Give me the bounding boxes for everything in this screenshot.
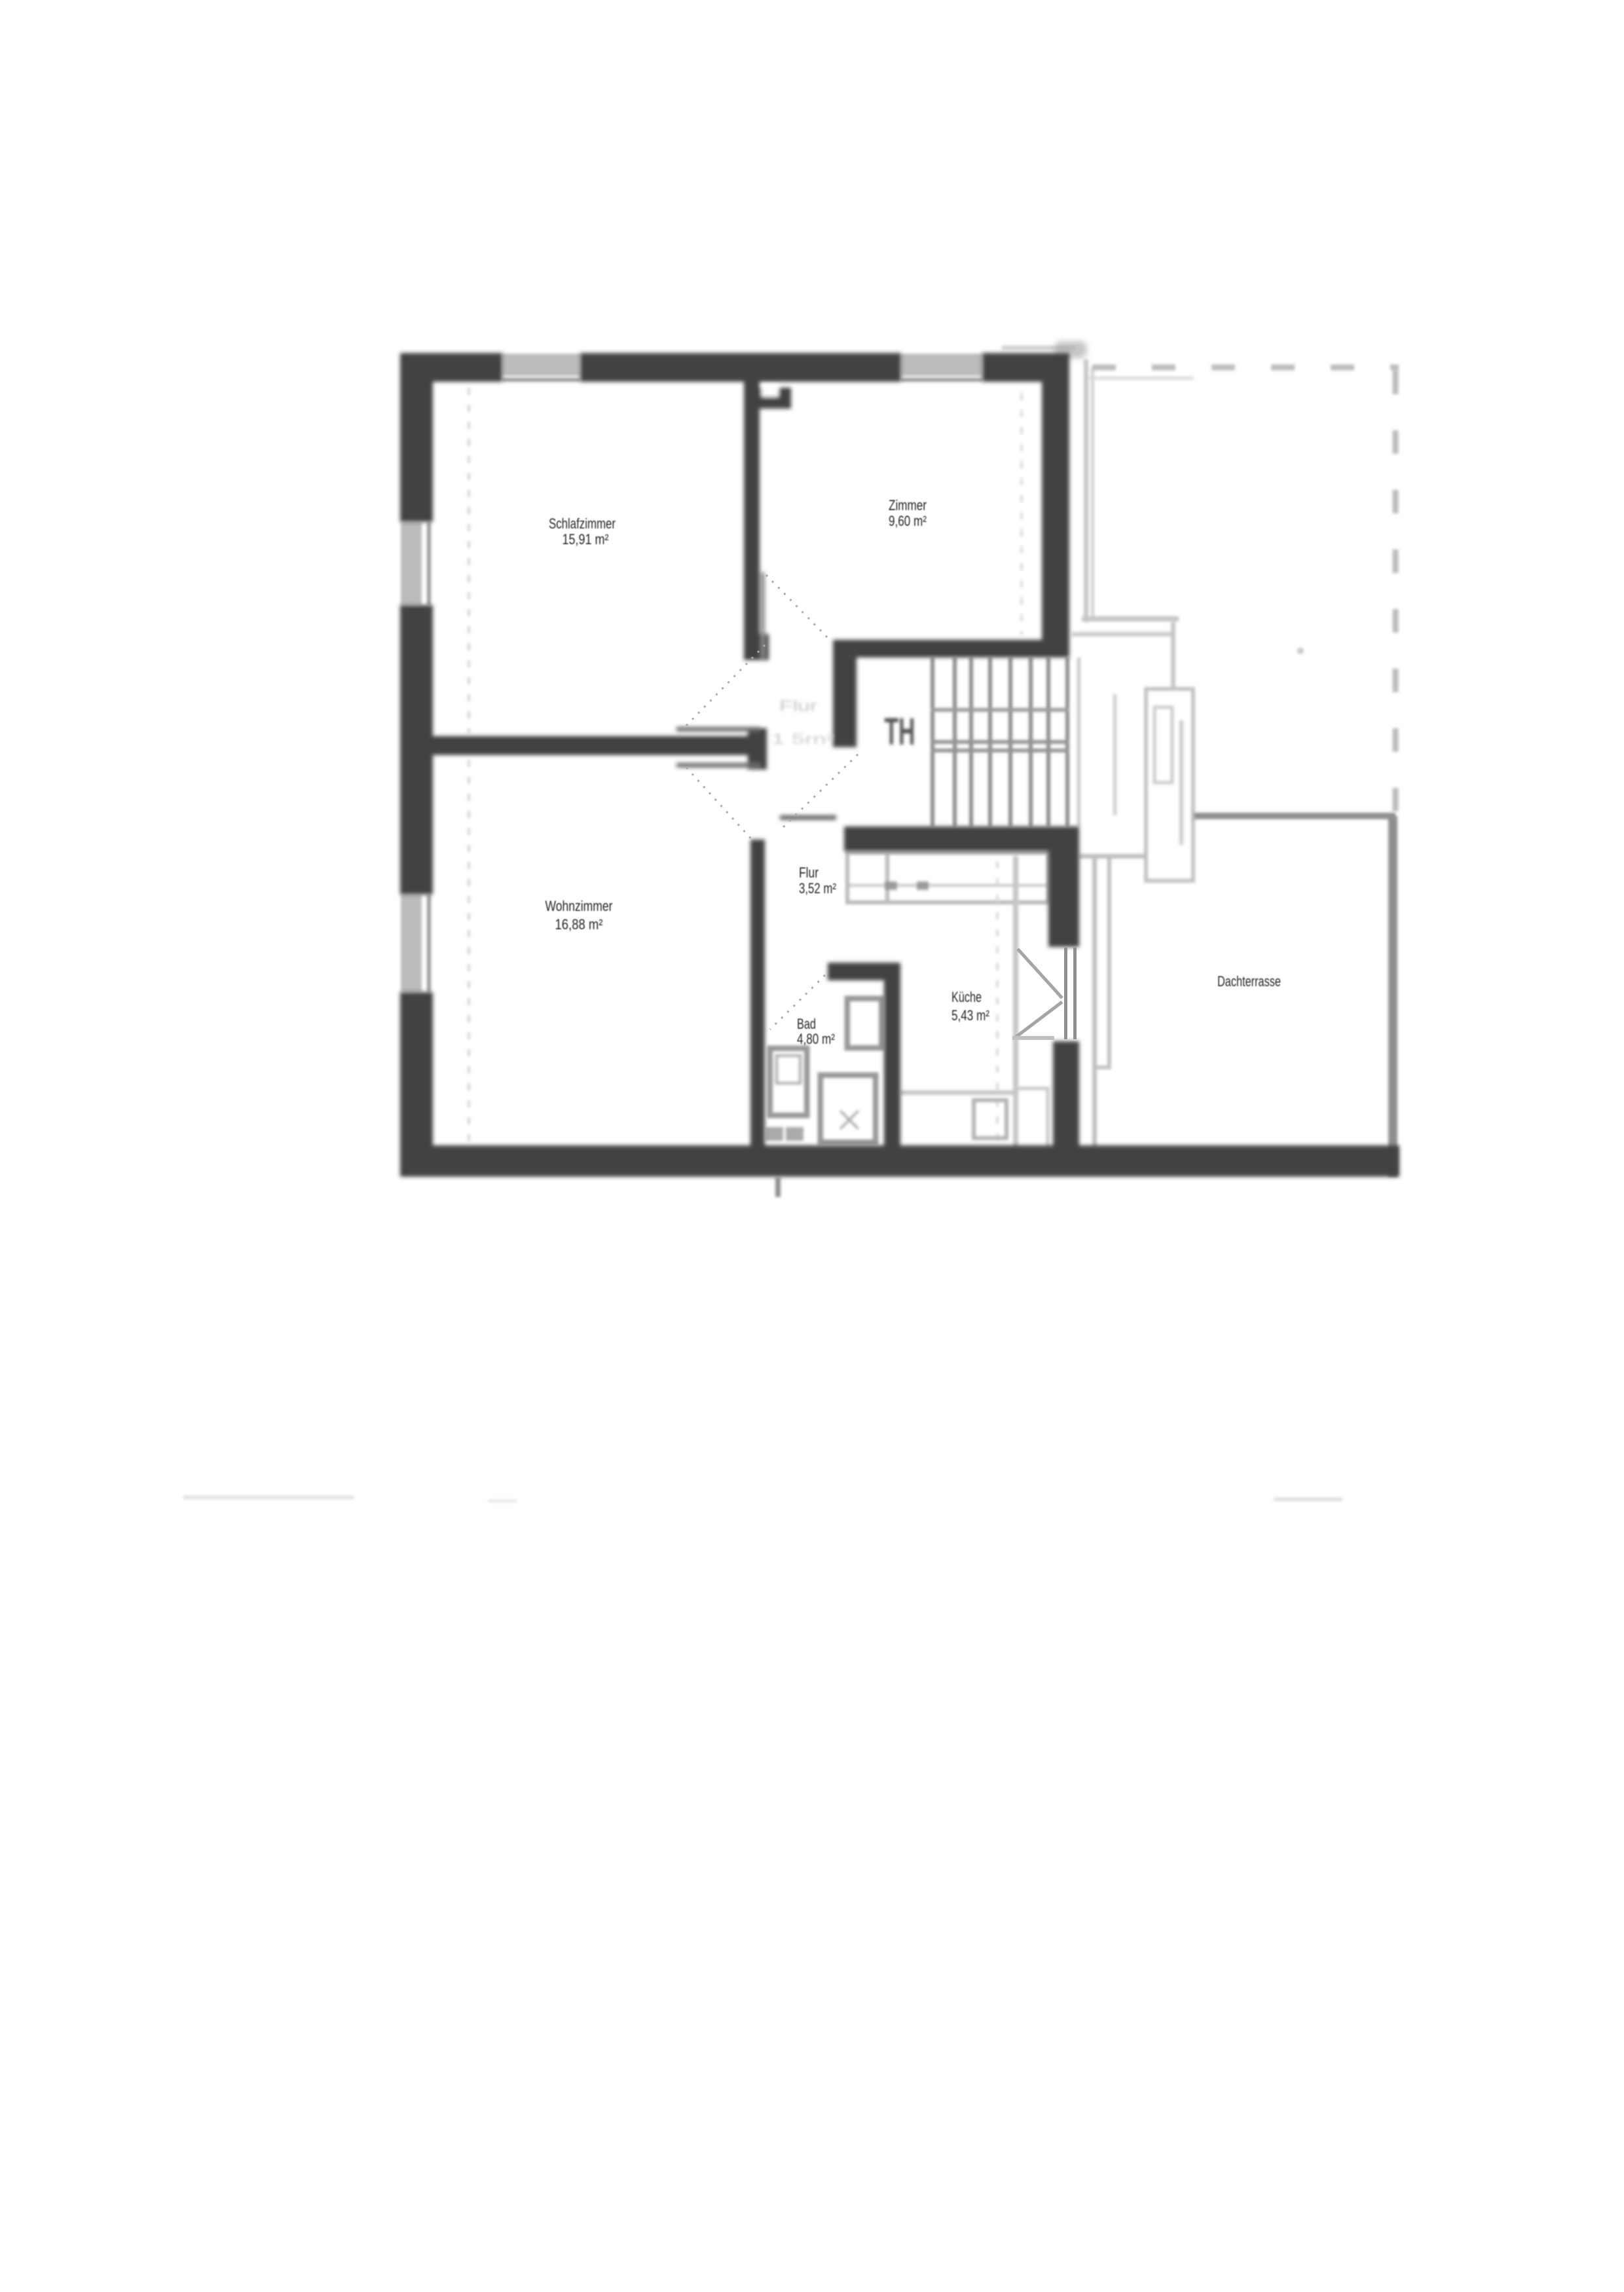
svg-text:Schlafzimmer: Schlafzimmer bbox=[549, 515, 616, 532]
svg-text:Bad: Bad bbox=[797, 1016, 816, 1032]
svg-text:9,60 m²: 9,60 m² bbox=[889, 513, 927, 529]
svg-text:Küche: Küche bbox=[951, 989, 982, 1005]
svg-text:Flur: Flur bbox=[779, 697, 817, 715]
svg-text:15,91 m²: 15,91 m² bbox=[563, 531, 609, 547]
svg-text:5,43 m²: 5,43 m² bbox=[951, 1007, 989, 1024]
svg-text:Wohnzimmer: Wohnzimmer bbox=[545, 898, 613, 914]
svg-text:Flur: Flur bbox=[799, 864, 819, 881]
svg-text:Zimmer: Zimmer bbox=[889, 497, 927, 513]
svg-text:4,80 m²: 4,80 m² bbox=[797, 1031, 835, 1047]
svg-text:TH: TH bbox=[885, 711, 915, 753]
svg-text:16,88 m²: 16,88 m² bbox=[555, 916, 603, 933]
svg-text:Dachterrasse: Dachterrasse bbox=[1217, 973, 1281, 989]
svg-text:3,52 m²: 3,52 m² bbox=[799, 880, 836, 896]
svg-text:1 5rn²: 1 5rn² bbox=[771, 731, 834, 747]
